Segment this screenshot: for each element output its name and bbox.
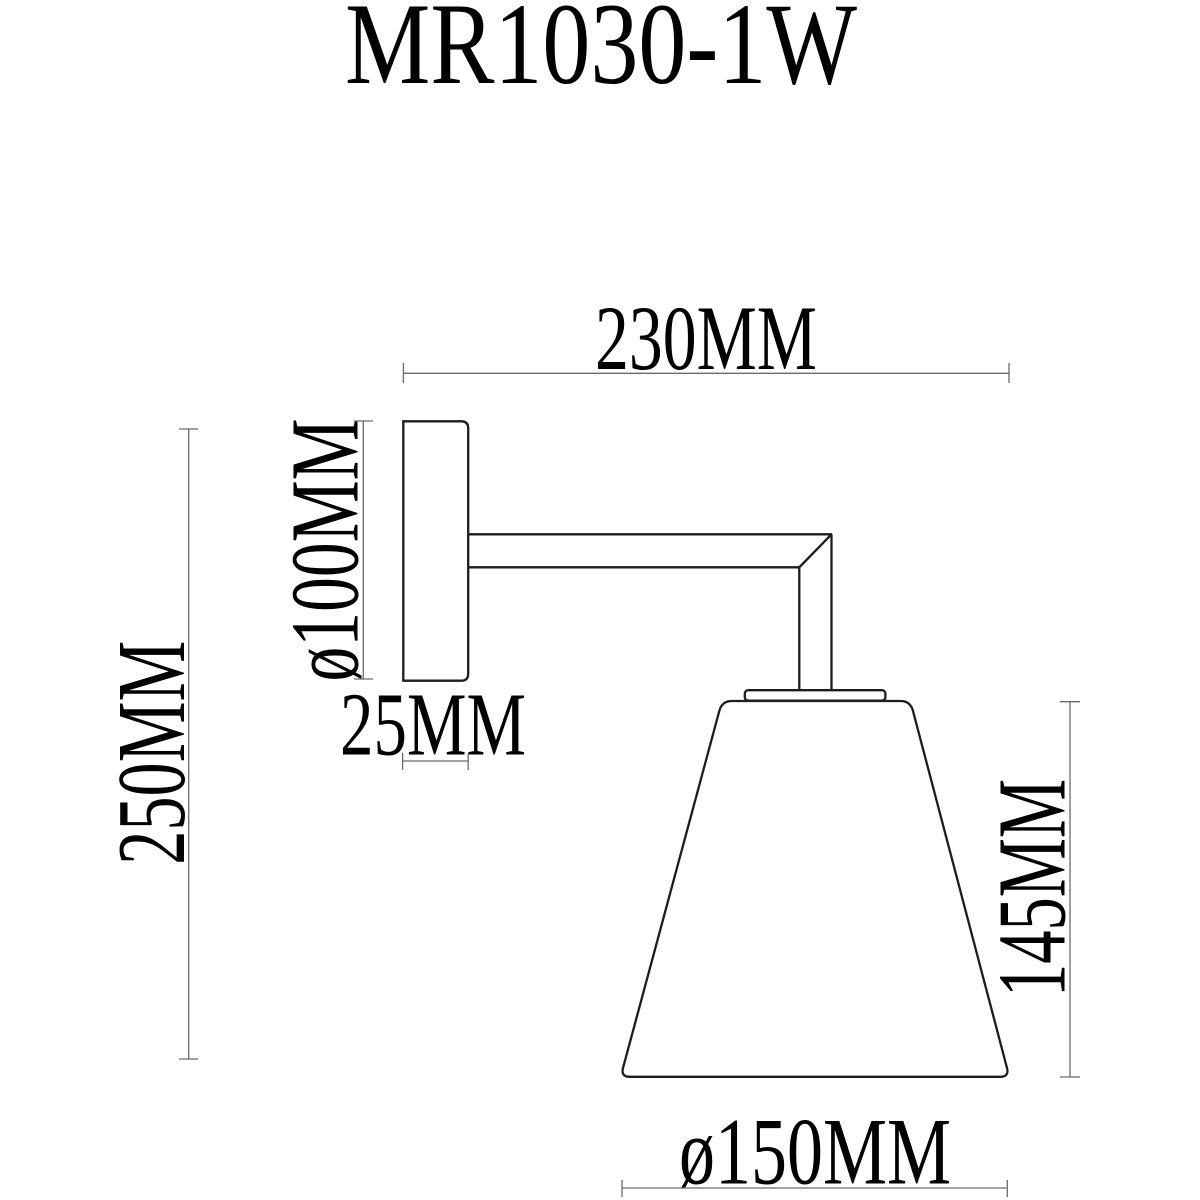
svg-text:25MM: 25MM (340, 675, 526, 774)
svg-text:MR1030-1W: MR1030-1W (345, 0, 857, 109)
svg-text:ø150MM: ø150MM (679, 1099, 951, 1200)
svg-text:250MM: 250MM (98, 641, 206, 865)
